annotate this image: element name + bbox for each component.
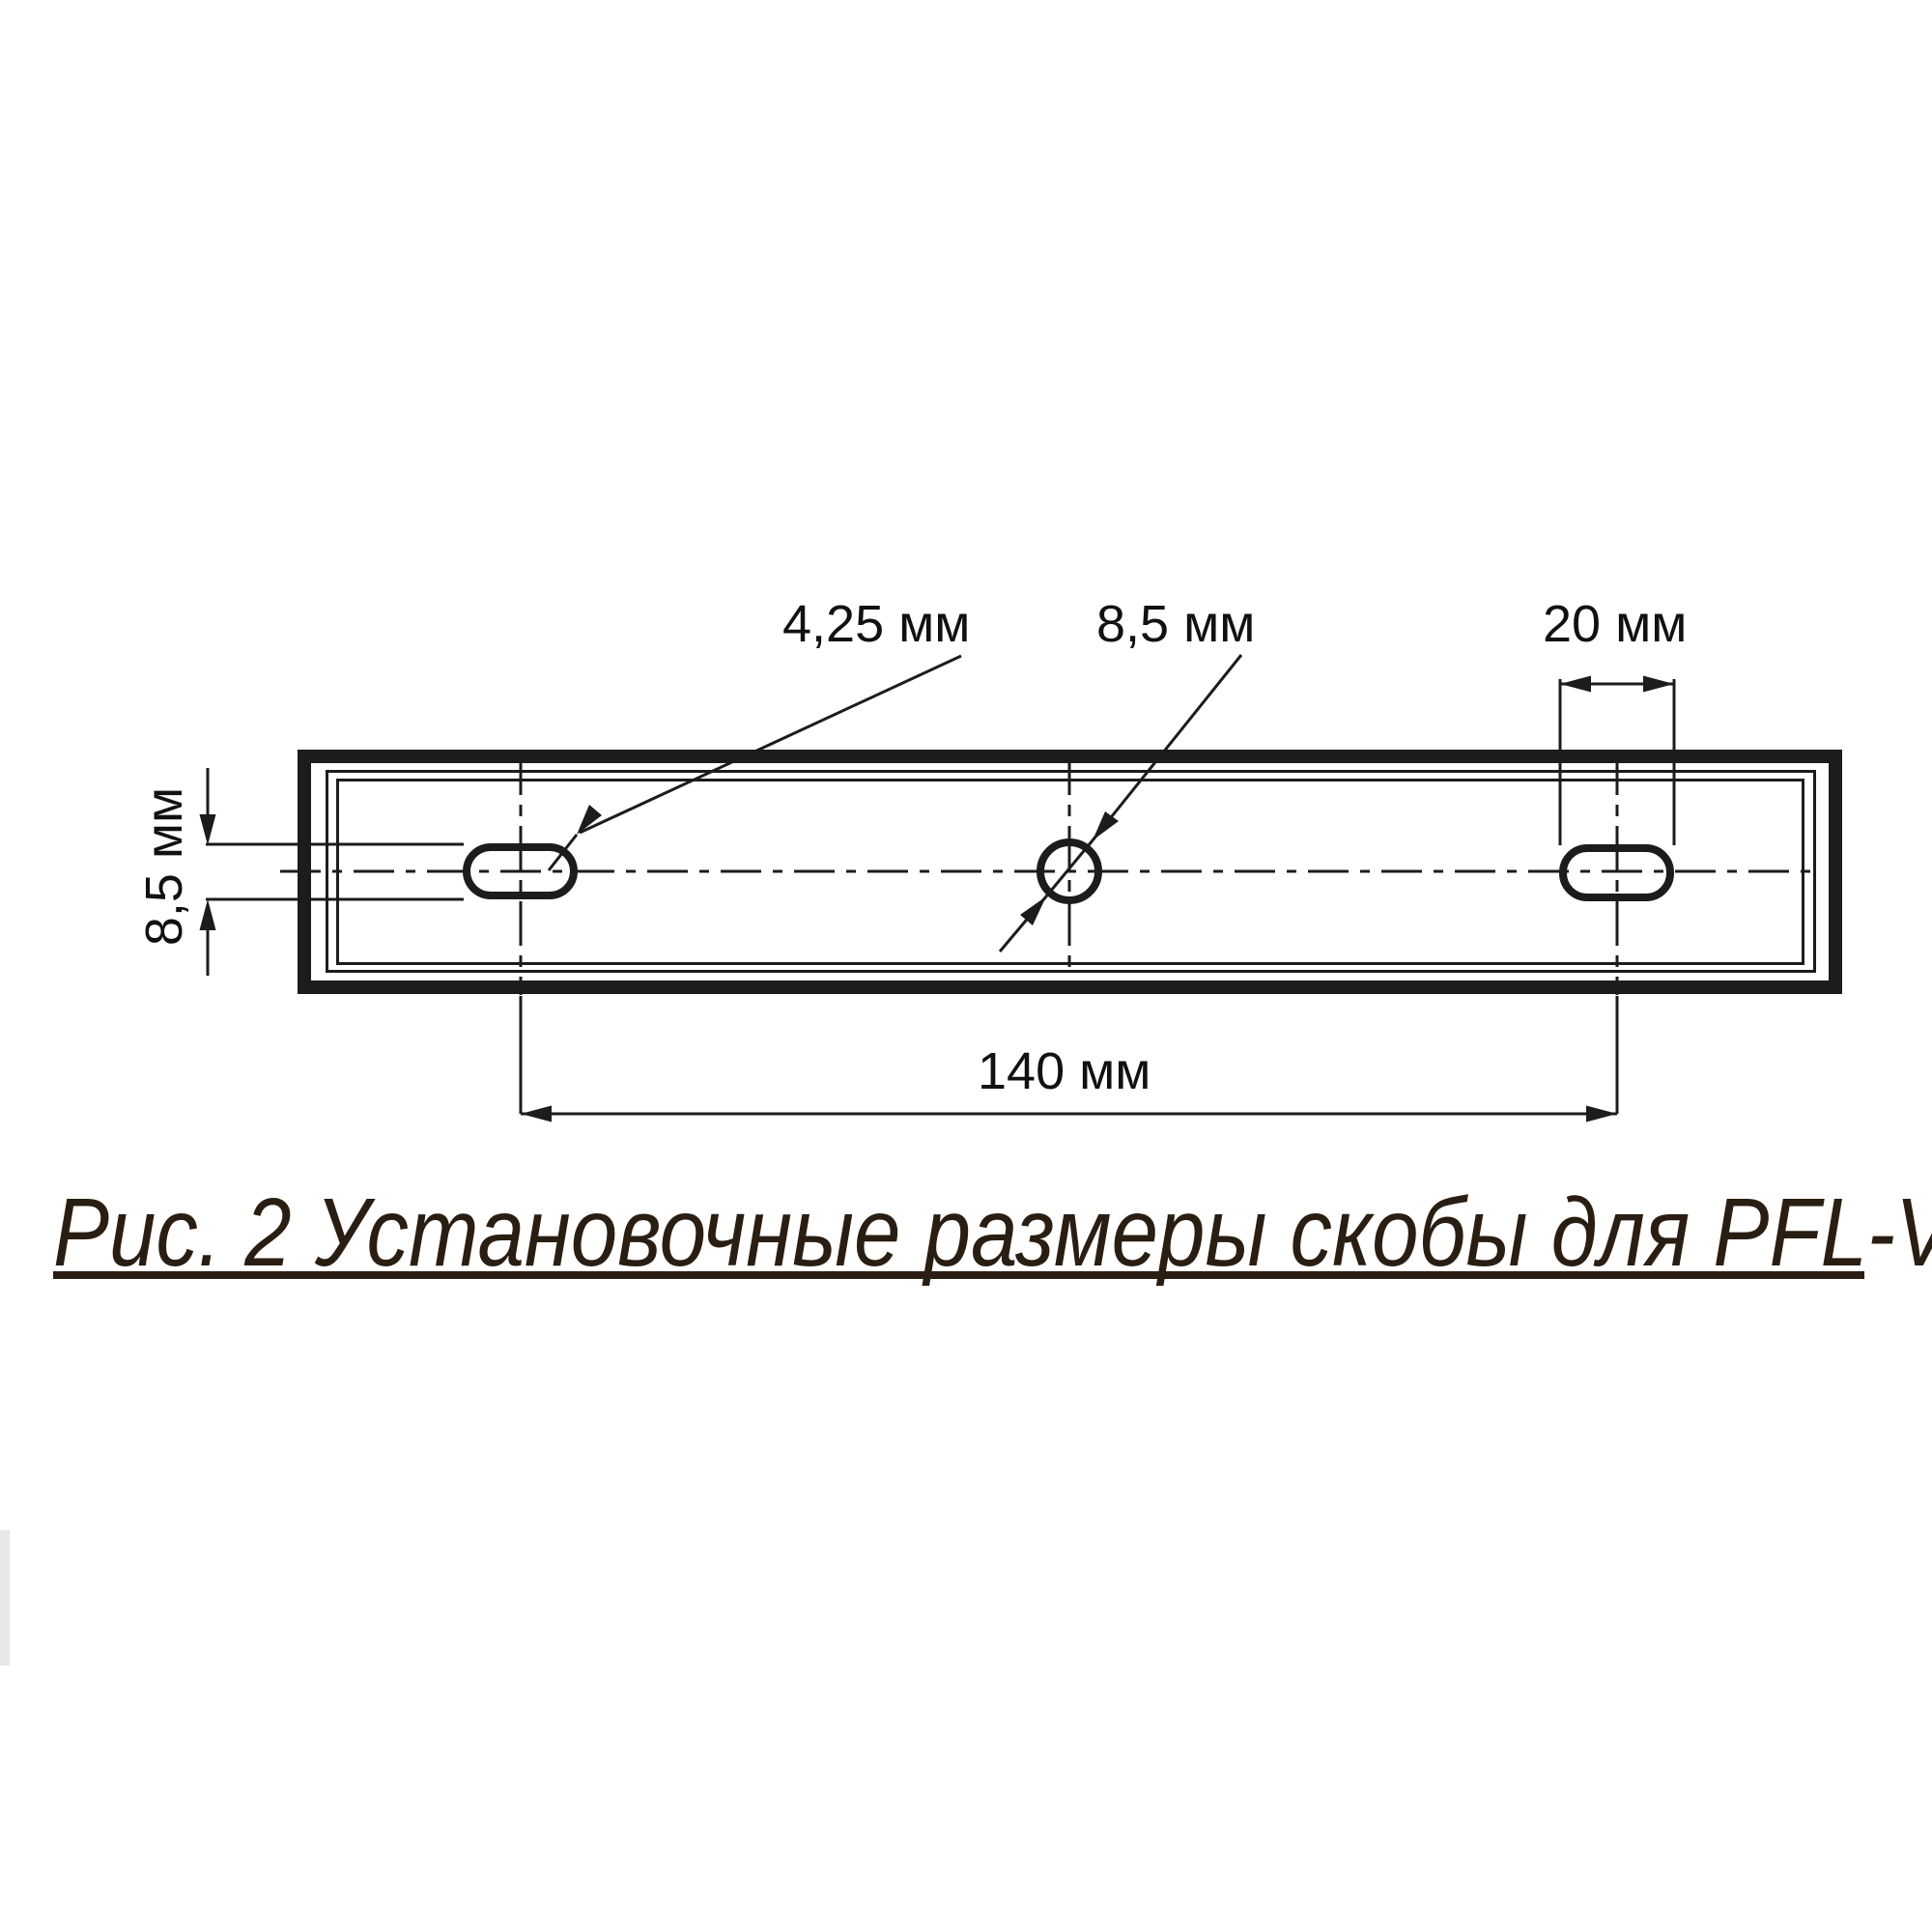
label-425mm: 4,25 мм — [782, 598, 970, 650]
label-140mm: 140 мм — [978, 1045, 1151, 1097]
arrow-85left-up — [200, 899, 216, 930]
label-85mm-hole: 8,5 мм — [1096, 598, 1255, 650]
arrow-85left-down — [200, 814, 216, 845]
leader-425 — [580, 656, 961, 833]
arrow-85-upper-tip — [1093, 811, 1119, 840]
arrow-20mm-right — [1643, 676, 1674, 693]
arrow-140-left — [521, 1106, 552, 1122]
figure-canvas: 4,25 мм 8,5 мм 20 мм 140 мм 8,5 мм Рис. … — [0, 0, 1932, 1932]
label-85mm-height: 8,5 мм — [138, 787, 190, 946]
left-edge-gray-strip — [0, 1530, 10, 1665]
bracket-drawing — [0, 0, 1932, 1932]
arrow-20mm-left — [1560, 676, 1591, 693]
caption-underline — [53, 1271, 1864, 1279]
leader-85 — [1093, 655, 1241, 840]
label-20mm: 20 мм — [1543, 598, 1687, 650]
figure-caption: Рис. 2 Установочные размеры скобы для PF… — [53, 1184, 1932, 1281]
arrow-140-right — [1586, 1106, 1617, 1122]
arrow-425-tip — [577, 805, 602, 835]
